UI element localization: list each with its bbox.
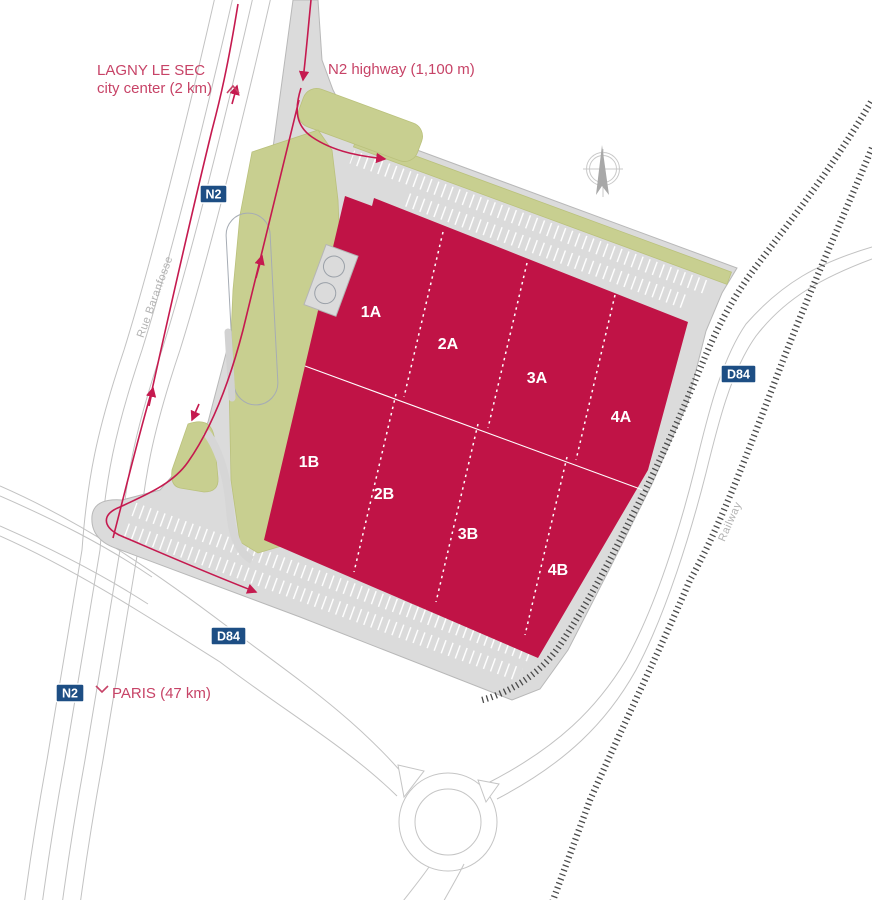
- unit-label-3b[interactable]: 3B: [458, 526, 478, 543]
- unit-label-3a[interactable]: 3A: [527, 370, 548, 387]
- badge-d84-east-label: D84: [727, 368, 750, 382]
- roundabout-island: [415, 789, 481, 855]
- badge-d84-west-label: D84: [217, 630, 240, 644]
- destination-paris: PARIS (47 km): [112, 685, 211, 702]
- destination-lagny-line1: LAGNY LE SEC: [97, 62, 205, 79]
- site-map: 1A 2A 3A 4A 1B 2B 3B 4B N2 D84 D84: [0, 0, 872, 900]
- unit-label-4b[interactable]: 4B: [548, 562, 568, 579]
- unit-label-2a[interactable]: 2A: [438, 336, 459, 353]
- compass-rose: [583, 145, 623, 197]
- unit-label-2b[interactable]: 2B: [374, 486, 394, 503]
- badge-n2-north: N2: [200, 185, 227, 203]
- badge-d84-east: D84: [721, 365, 756, 383]
- route-arrow: [192, 404, 199, 420]
- unit-label-1b[interactable]: 1B: [299, 454, 319, 471]
- chevron-down-icon: [96, 686, 108, 692]
- destination-lagny-line2: city center (2 km): [97, 80, 212, 97]
- badge-n2-south-label: N2: [62, 687, 78, 701]
- railway-label: Railway: [716, 500, 744, 543]
- unit-label-1a[interactable]: 1A: [361, 304, 382, 321]
- badge-n2-north-label: N2: [206, 188, 222, 202]
- unit-label-4a[interactable]: 4A: [611, 409, 632, 426]
- badge-n2-south: N2: [56, 684, 84, 702]
- roundabout-south-road-edge: [400, 867, 429, 900]
- roundabout: [398, 765, 499, 900]
- internal-road-stub: [228, 332, 232, 398]
- highway-exit-label: N2 highway (1,100 m): [328, 61, 475, 78]
- badge-d84-west: D84: [211, 627, 246, 645]
